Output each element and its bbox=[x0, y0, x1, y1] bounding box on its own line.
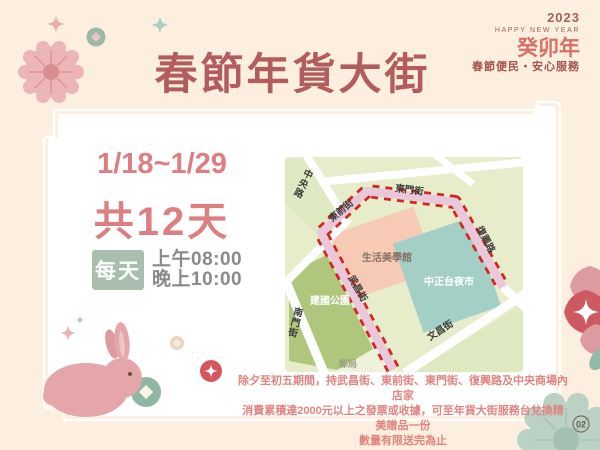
header-right-block: 2023 HAPPY NEW YEAR 癸卯年 春節便民・安心服務 bbox=[472, 11, 580, 73]
daily-badge: 每天 bbox=[92, 250, 144, 290]
notice-block: 除夕至初五期間，持武昌街、東前街、東門街、復興路及中央商場內店家 消費累積達20… bbox=[237, 374, 569, 449]
event-duration: 共12天 bbox=[78, 189, 246, 247]
notice-line-2: 消費累積達2000元以上之發票或收據，可至年貨大街服務台兌換精美贈品一份 bbox=[237, 404, 569, 434]
place-label-museum: 生活美學館 bbox=[362, 251, 412, 264]
zodiac-year-label: 癸卯年 bbox=[472, 37, 580, 58]
notice-line-1: 除夕至初五期間，持武昌街、東前街、東門街、復興路及中央商場內店家 bbox=[237, 374, 569, 404]
event-date-range: 1/18~1/29 bbox=[78, 148, 246, 181]
notice-line-3: 數量有限送完為止 bbox=[237, 434, 569, 449]
event-map: 中央路 東前街 東門街 復興路 武昌街 文昌街 南門街 生活美學館 中正台夜市 … bbox=[285, 157, 523, 372]
greeting-label: HAPPY NEW YEAR bbox=[472, 27, 580, 34]
place-label-park: 建國公園 bbox=[309, 294, 350, 307]
opening-times: 上午08:00 晚上10:00 bbox=[152, 250, 242, 290]
time-evening: 晚上10:00 bbox=[152, 270, 242, 290]
place-label-market: 中正台夜市 bbox=[424, 275, 474, 288]
schedule-row: 每天 上午08:00 晚上10:00 bbox=[92, 250, 242, 290]
year-label: 2023 bbox=[472, 11, 580, 24]
tagline-label: 春節便民・安心服務 bbox=[472, 62, 580, 73]
time-morning: 上午08:00 bbox=[152, 250, 242, 270]
page-title: 春節年貨大街 bbox=[105, 40, 480, 102]
poster-page: { "page": { "page_number": "02" }, "head… bbox=[0, 0, 600, 450]
place-label-post: 郵局 bbox=[339, 358, 357, 369]
